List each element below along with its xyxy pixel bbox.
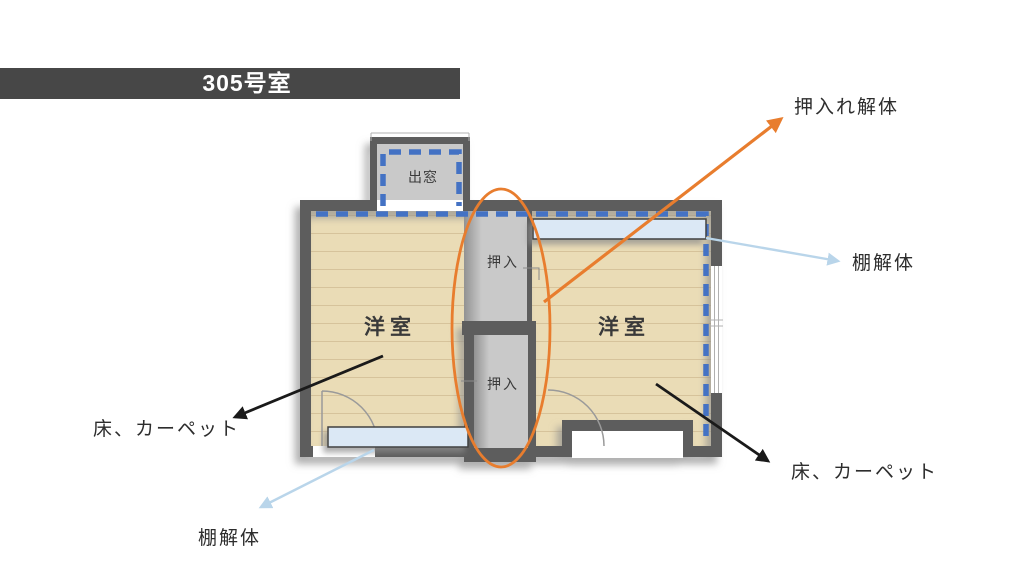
wall-top — [300, 200, 722, 211]
slide: 305号室 — [0, 0, 1024, 576]
bay-window-wall-top — [370, 137, 470, 144]
floor-carpet-label-left: 床、カーペット — [93, 418, 240, 440]
floor-carpet-label-right: 床、カーペット — [791, 461, 938, 483]
lower-closet-label: 押入 — [487, 376, 519, 392]
shelf-demolition-label-left: 棚解体 — [198, 527, 261, 549]
closet-divider-wall — [462, 321, 536, 335]
closet-demolition-label: 押入れ解体 — [794, 96, 899, 118]
right-room-label: 洋室 — [598, 315, 650, 339]
shelf-demolition-label-right: 棚解体 — [852, 252, 915, 274]
left-room-label: 洋室 — [364, 315, 416, 339]
left-room-shelf — [328, 427, 468, 447]
right-room-shelf — [533, 219, 706, 239]
bay-window-wall-right — [463, 137, 470, 200]
bay-window-opening — [377, 200, 463, 211]
notch-wall-right — [683, 431, 693, 457]
bay-window-wall-left — [370, 137, 377, 200]
wall-left — [300, 200, 311, 457]
upper-closet-label: 押入 — [487, 254, 519, 270]
shelf-demolition-arrow-right — [706, 238, 838, 261]
room-title: 305号室 — [202, 70, 291, 96]
notch-recess — [572, 431, 683, 458]
upper-closet-wall-right — [527, 211, 532, 321]
floorplan-diagram: 305号室 — [0, 0, 1024, 576]
bay-window-label: 出窓 — [408, 169, 438, 185]
notch-wall-top — [562, 420, 693, 431]
shelf-demolition-arrow-left — [261, 450, 374, 507]
notch-wall-left — [562, 431, 572, 457]
right-wall-window-opening — [711, 266, 722, 393]
